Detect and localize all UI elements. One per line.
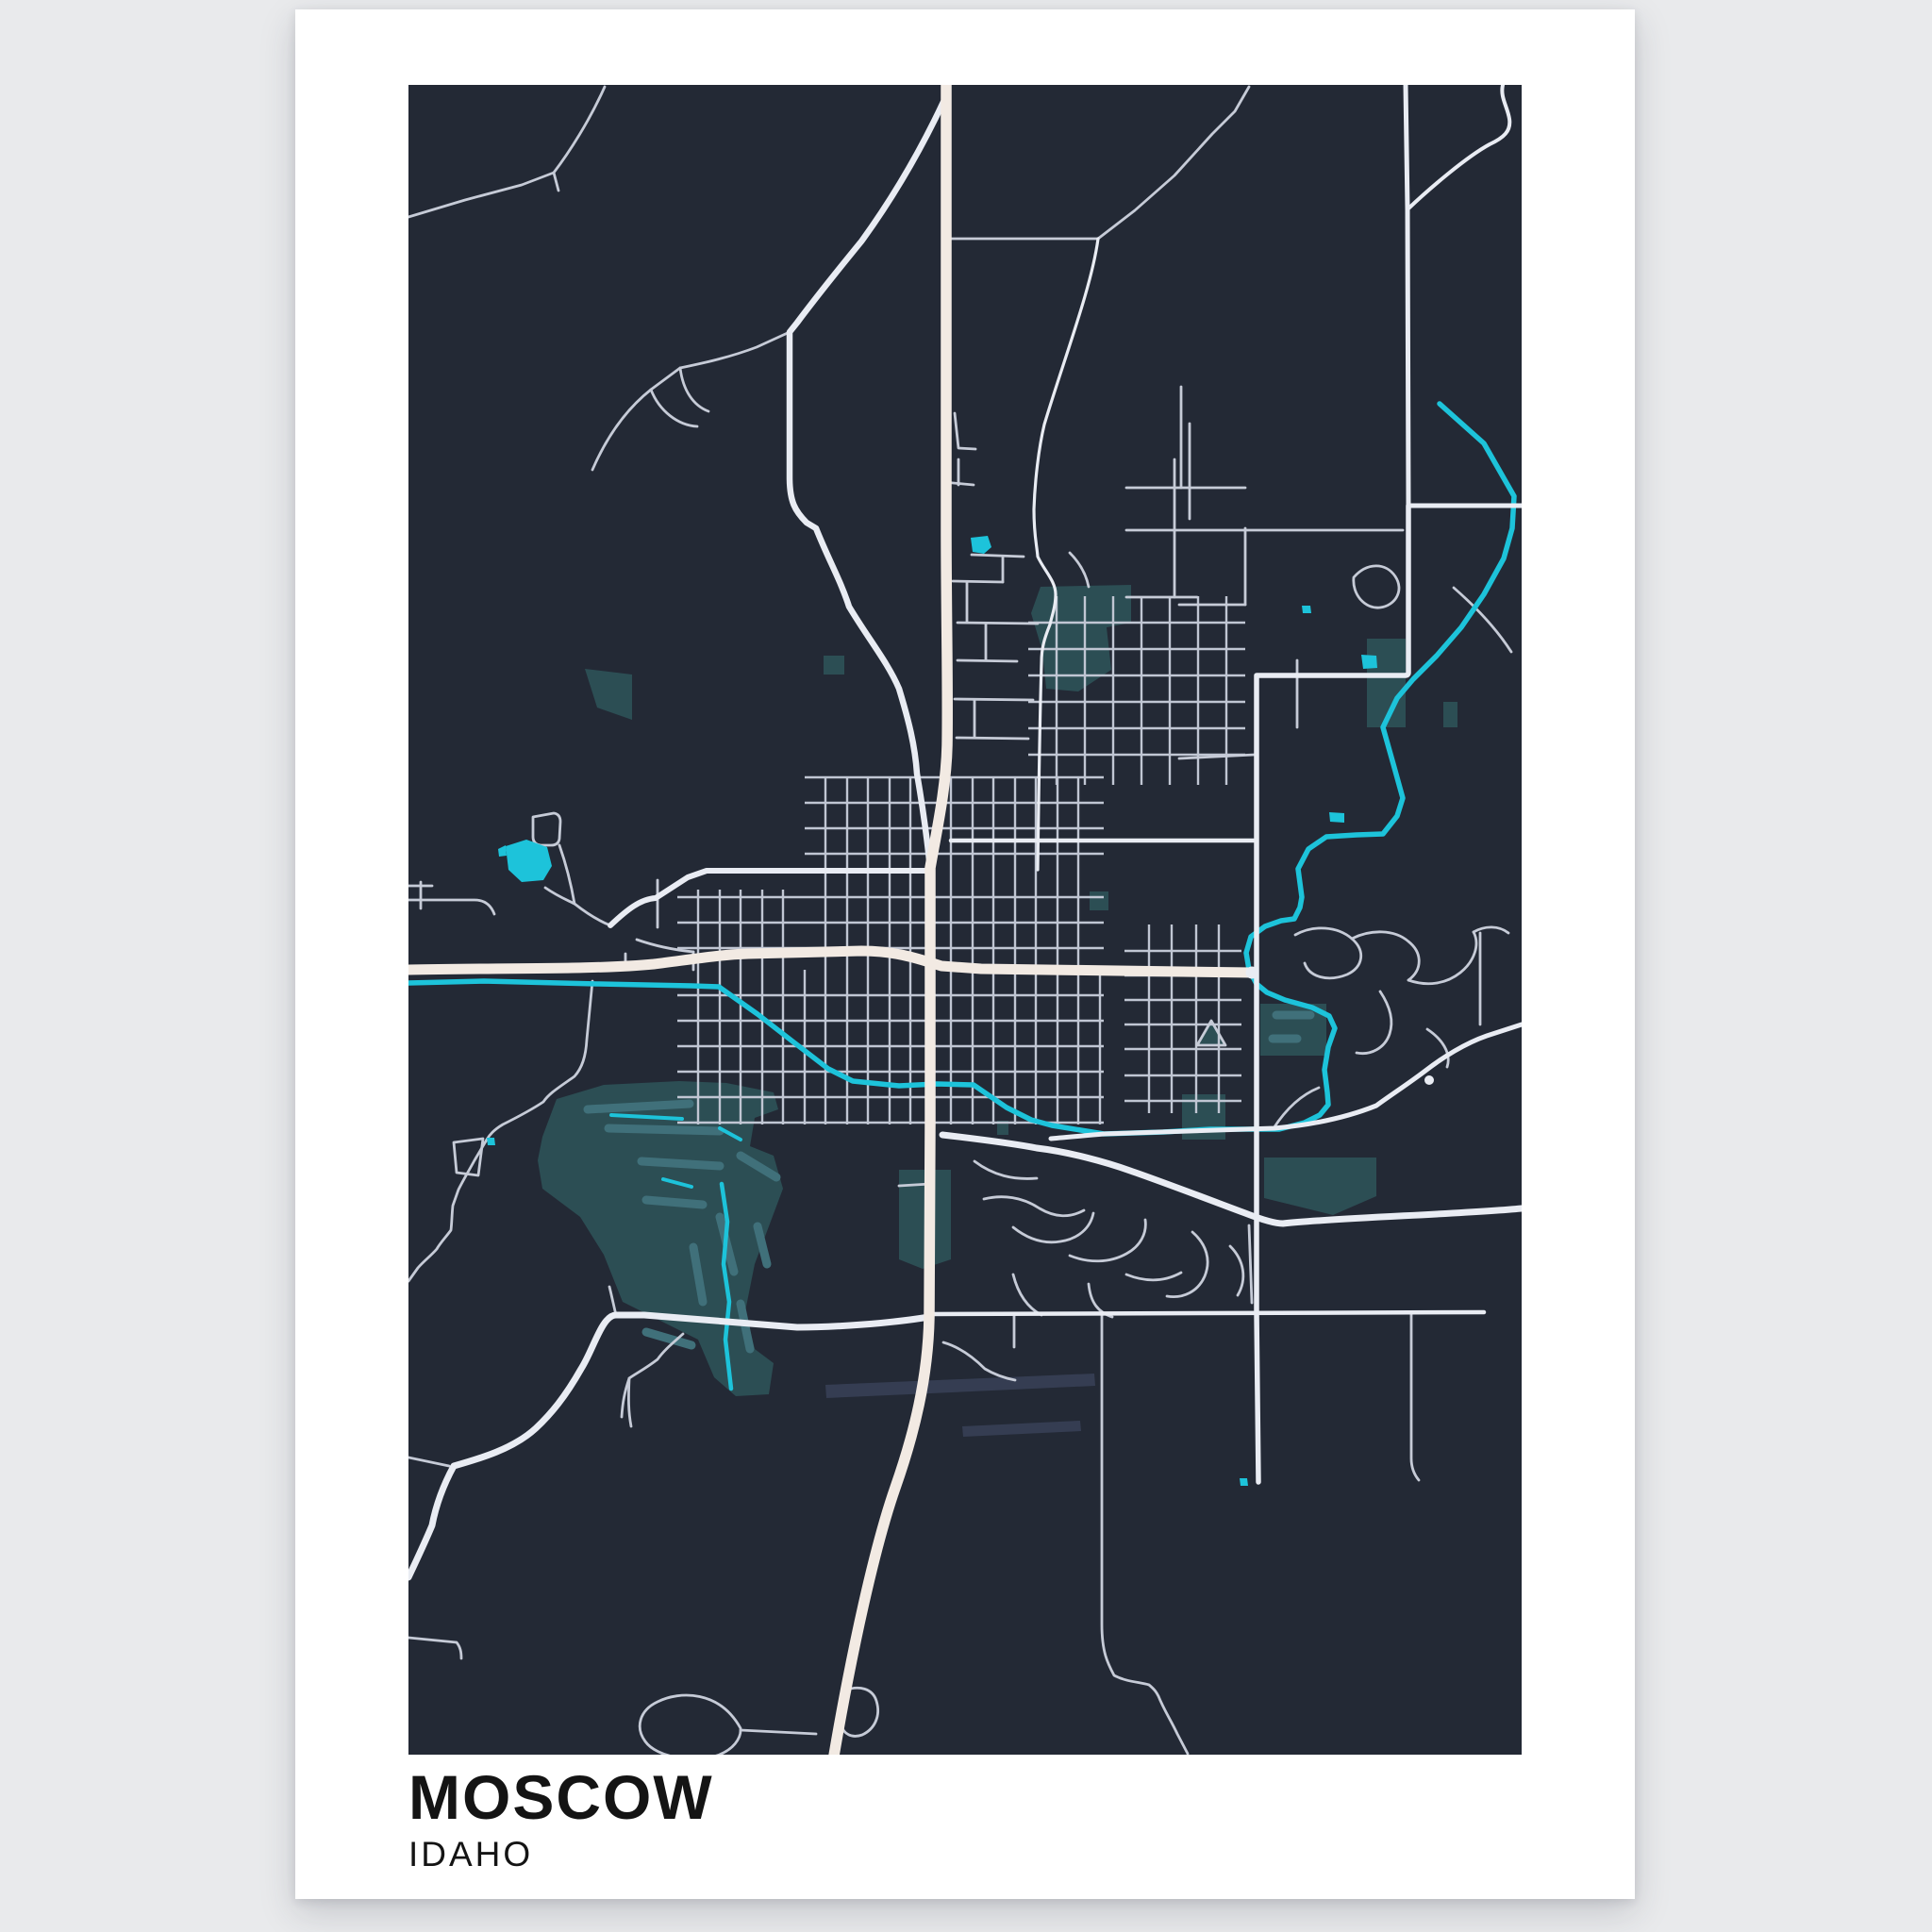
page-background: MOSCOW IDAHO — [0, 0, 1932, 1932]
map-area — [408, 85, 1522, 1755]
poster: MOSCOW IDAHO — [295, 9, 1635, 1899]
map-background — [408, 85, 1522, 1755]
moscow-street-map — [408, 85, 1522, 1755]
poster-title: MOSCOW — [408, 1766, 714, 1828]
caption-block: MOSCOW IDAHO — [408, 1766, 714, 1872]
poster-subtitle: IDAHO — [408, 1837, 714, 1872]
